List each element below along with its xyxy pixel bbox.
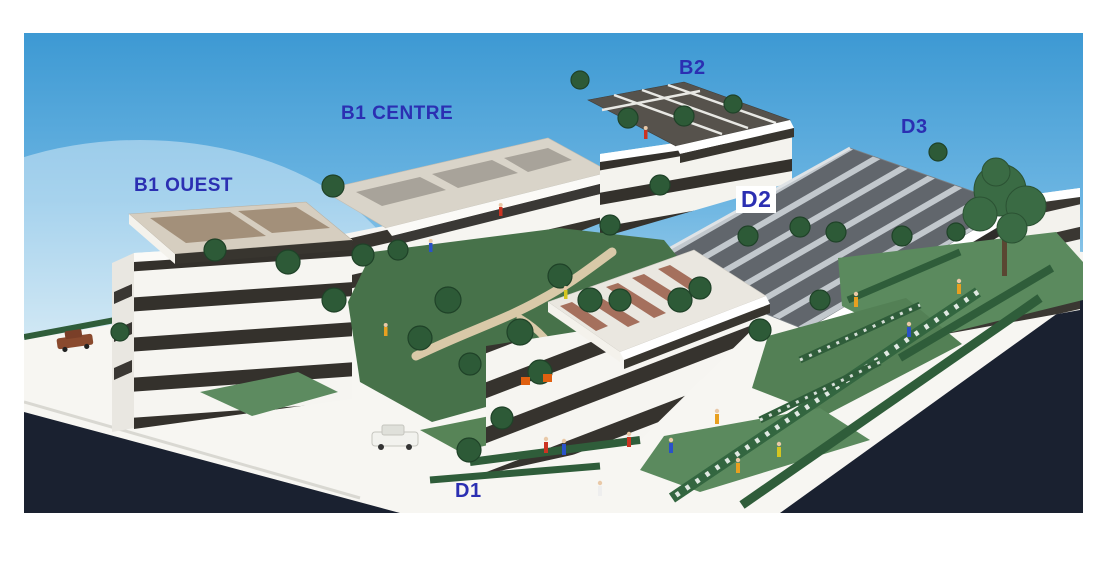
label-b2: B2 — [679, 58, 706, 78]
model-scene — [24, 33, 1083, 513]
label-b1-centre: B1 CENTRE — [341, 104, 453, 123]
label-d3: D3 — [901, 117, 928, 137]
label-d2: D2 — [736, 186, 776, 213]
label-b1-ouest: B1 OUEST — [134, 176, 233, 195]
label-d1: D1 — [455, 481, 482, 501]
scanned-photo-page: B1 OUEST B1 CENTRE B2 D3 D2 D1 — [0, 0, 1109, 564]
model-photo — [24, 33, 1083, 513]
